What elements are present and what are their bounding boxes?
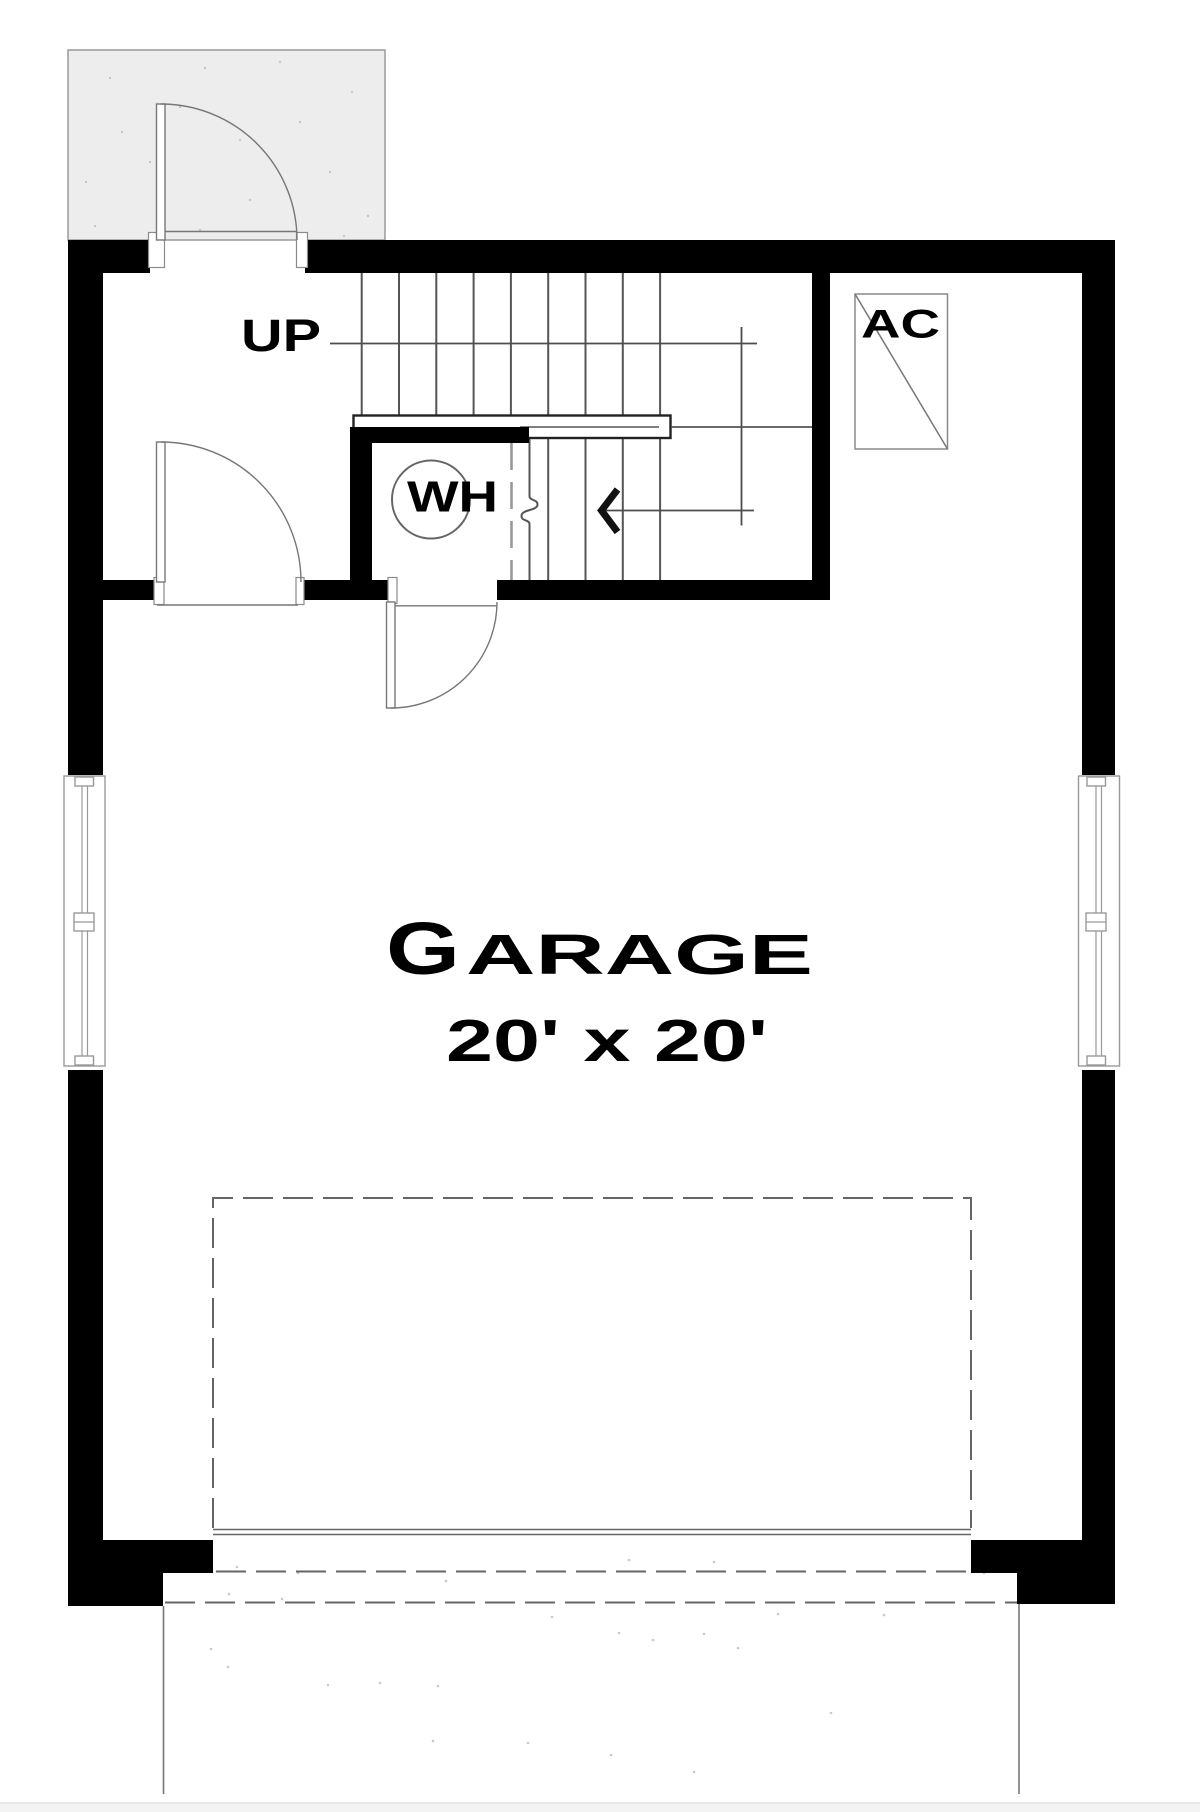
svg-text:WH: WH [407,473,498,522]
svg-text:AC: AC [861,303,940,347]
svg-text:20' x 20': 20' x 20' [446,1007,768,1074]
svg-text:ARAGE: ARAGE [466,924,813,987]
svg-text:G: G [386,907,460,990]
svg-text:UP: UP [241,310,321,361]
